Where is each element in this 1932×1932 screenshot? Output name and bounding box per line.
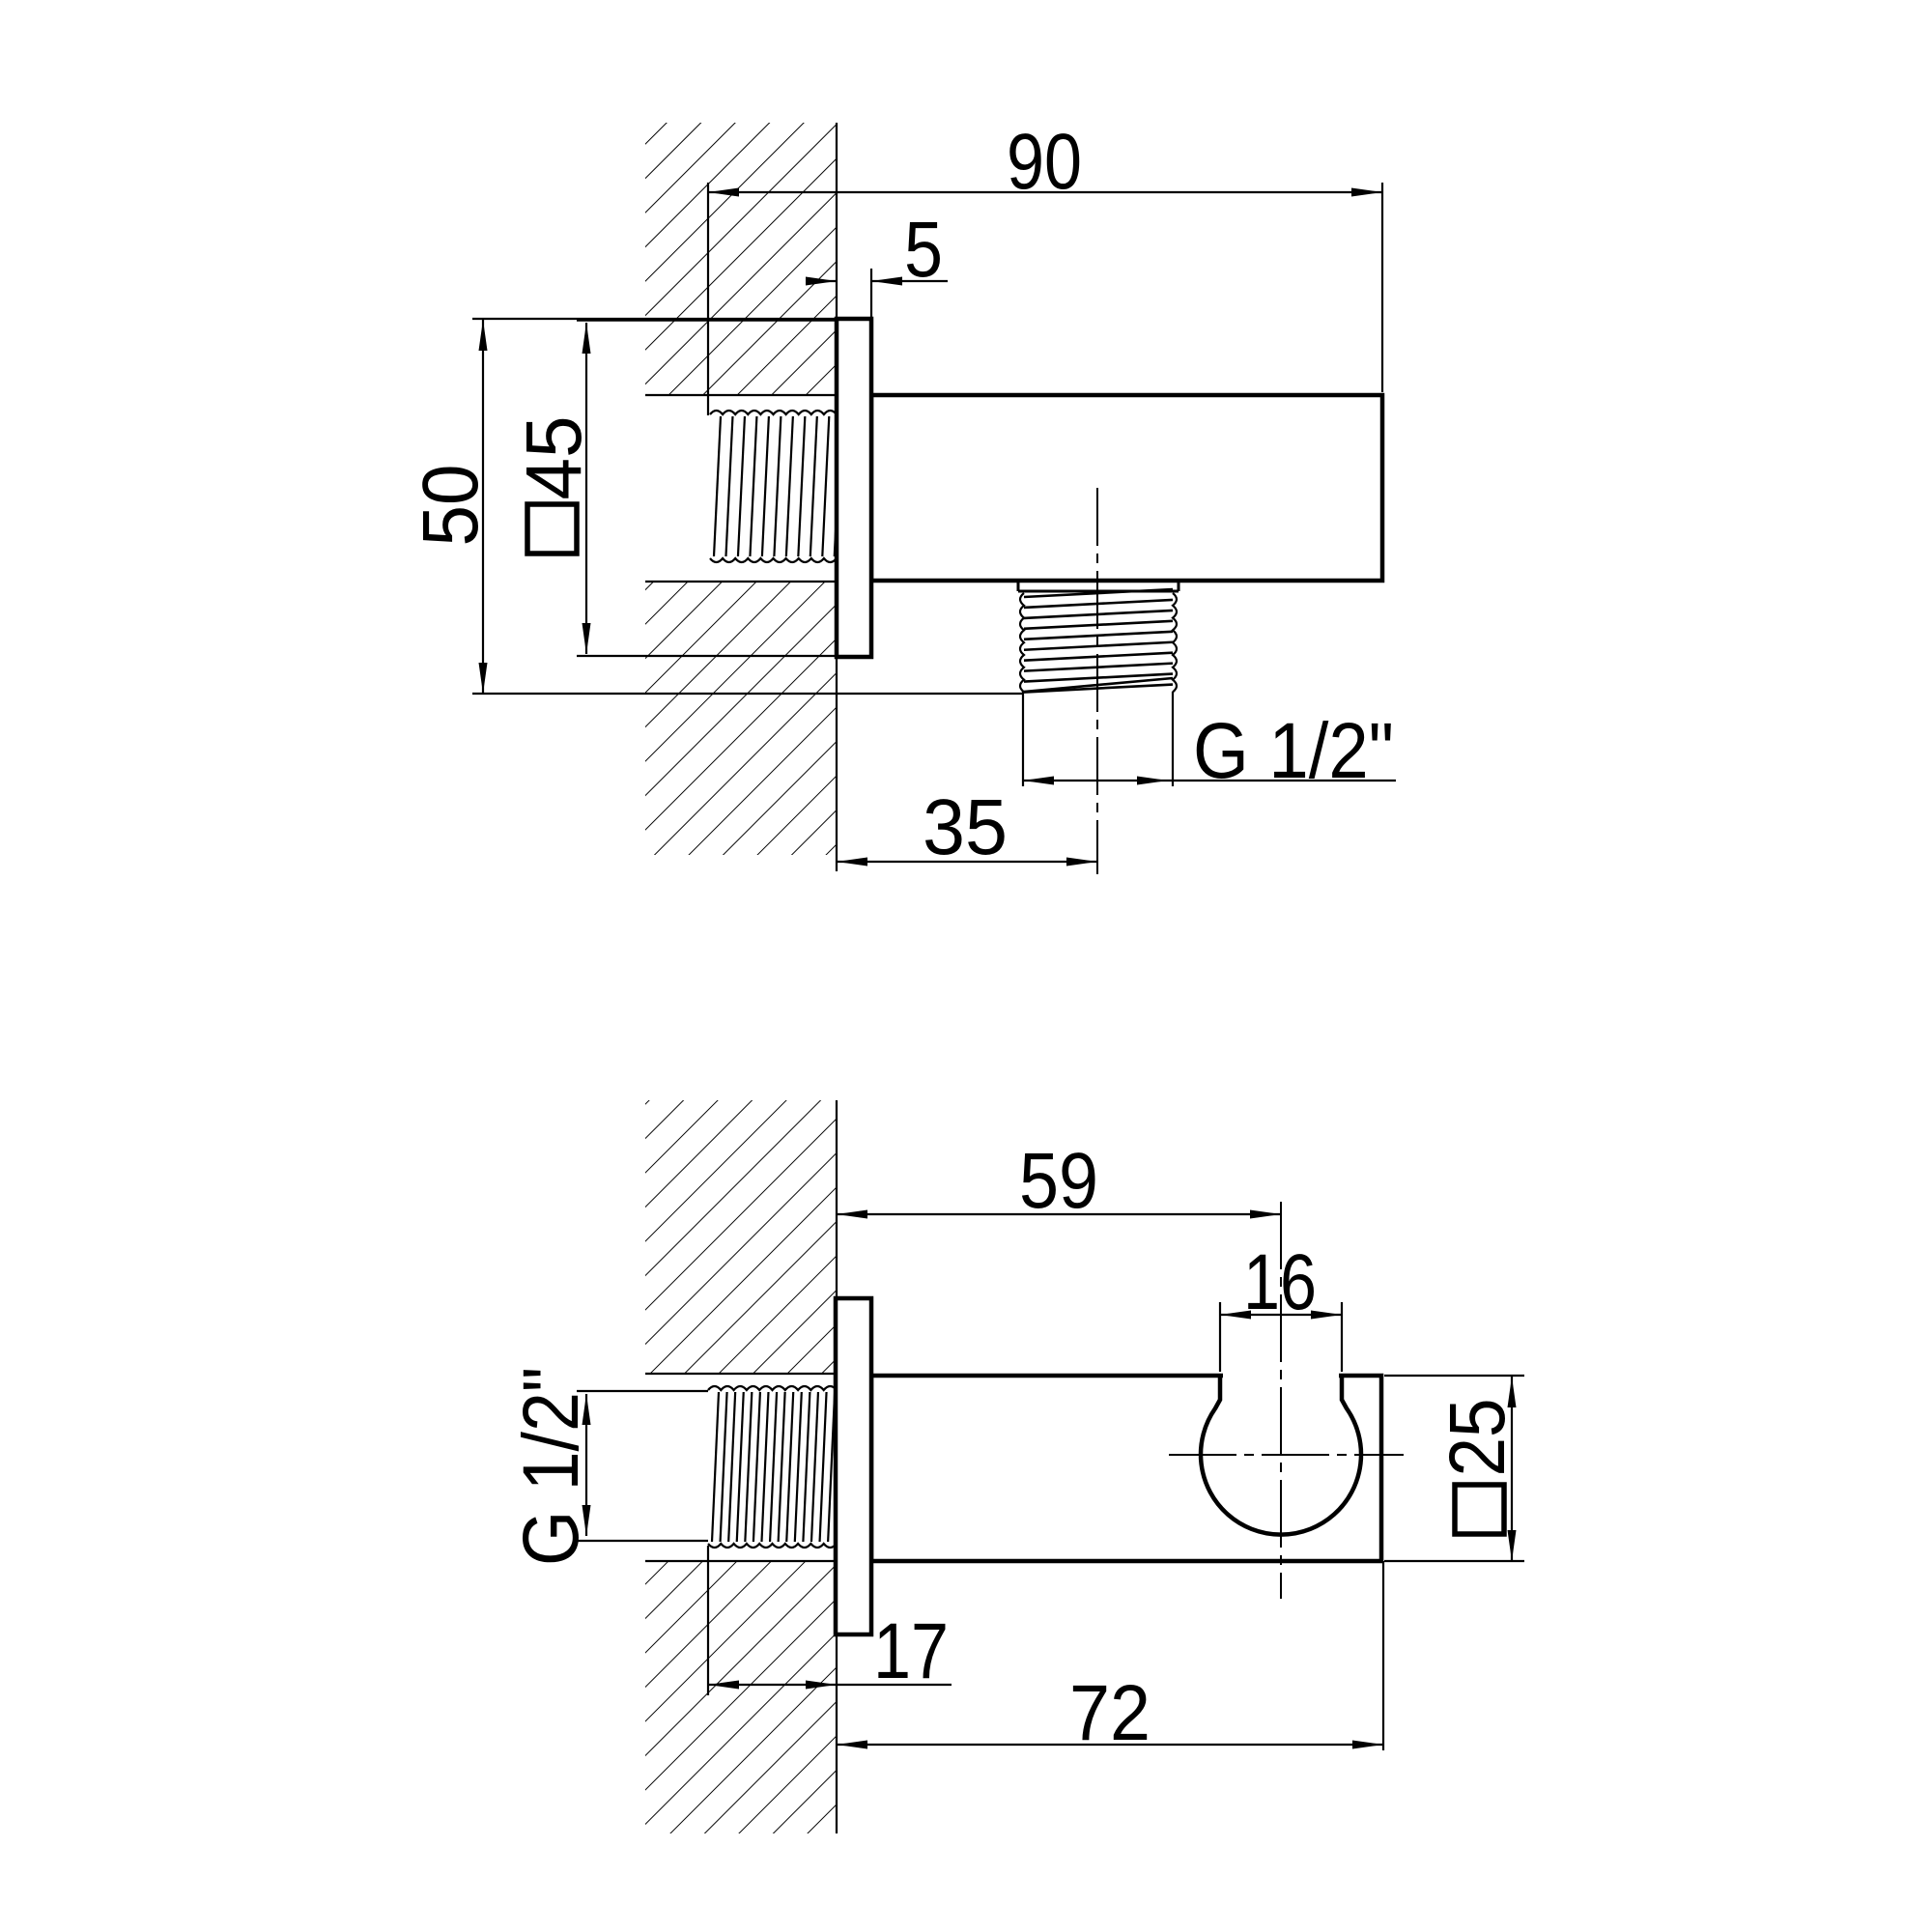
svg-text:5: 5 [904, 206, 943, 294]
svg-text:35: 35 [923, 783, 1008, 871]
svg-text:16: 16 [1243, 1238, 1317, 1326]
svg-text:45: 45 [510, 416, 598, 500]
svg-text:G 1/2": G 1/2" [1193, 707, 1394, 795]
svg-text:17: 17 [873, 1607, 949, 1695]
svg-text:50: 50 [407, 465, 495, 547]
svg-text:25: 25 [1434, 1399, 1521, 1477]
svg-text:72: 72 [1069, 1669, 1151, 1757]
svg-text:90: 90 [1007, 118, 1082, 206]
svg-text:59: 59 [1019, 1137, 1098, 1225]
svg-text:G 1/2": G 1/2" [507, 1367, 595, 1566]
